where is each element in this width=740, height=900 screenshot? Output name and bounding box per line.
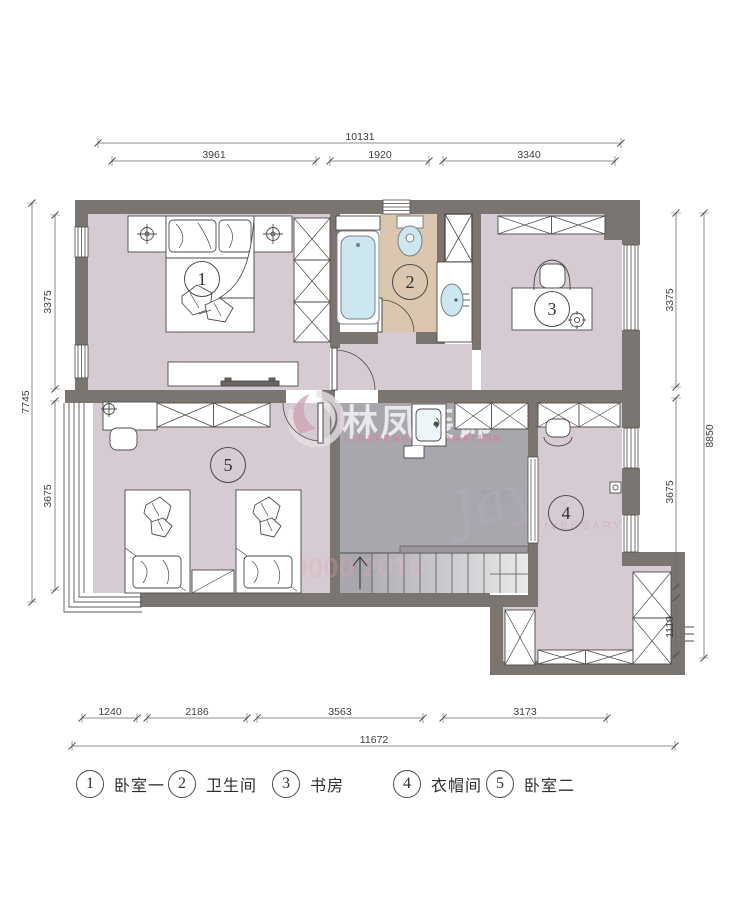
bay-window-strip — [58, 593, 148, 616]
dim-label: 3173 — [511, 706, 538, 718]
legend-number: 5 — [486, 770, 514, 798]
room-number-text: 3 — [548, 299, 557, 320]
wall-segment — [528, 403, 538, 457]
dim-label: 10131 — [343, 131, 376, 143]
watermark-digits: 0000 2010 — [292, 552, 424, 584]
dim-label: 1920 — [366, 149, 393, 161]
room-number-cloakroom: 4 — [548, 495, 584, 531]
dim-label: 11672 — [358, 734, 390, 746]
wall-segment — [528, 543, 538, 595]
cloakroom-floor — [538, 403, 622, 566]
legend-item: 1 卧室一 — [76, 770, 165, 798]
wall-segment — [437, 214, 445, 262]
bay-window-strip — [58, 403, 93, 616]
legend-item: 5 卧室二 — [486, 770, 575, 798]
bathtub-alcove-floor — [335, 214, 380, 332]
legend-label: 卧室一 — [114, 772, 165, 796]
legend-label: 卫生间 — [206, 772, 257, 796]
wall-segment — [410, 200, 640, 214]
dim-label: 8850 — [704, 422, 716, 449]
cloakroom-wing-floor — [538, 566, 671, 661]
wall-segment — [622, 468, 640, 515]
room-number-text: 4 — [562, 503, 571, 524]
shaft-column — [445, 214, 472, 262]
watermark-subtitle: LIN&FENG DECORATION — [344, 434, 502, 445]
dim-label: 1110 — [664, 614, 676, 640]
socket-ticks — [685, 627, 694, 641]
wall-segment — [140, 593, 340, 607]
room-number-bedroom2: 5 — [210, 447, 246, 483]
corridor-floor — [378, 332, 416, 344]
legend-number: 4 — [393, 770, 421, 798]
wall-segment — [622, 200, 640, 245]
wall-segment — [75, 257, 88, 345]
wall-segment — [330, 593, 490, 607]
legend-item: 2 卫生间 — [168, 770, 257, 798]
wall-segment — [416, 332, 445, 344]
dim-label: 3961 — [200, 149, 227, 161]
cloakroom-wing-floor — [503, 607, 538, 661]
legend-item: 3 书房 — [272, 770, 344, 798]
dim-label: 3563 — [326, 706, 353, 718]
legend: 1 卧室一 2 卫生间 3 书房 4 衣帽间 5 卧室二 — [0, 770, 740, 810]
bedroom1-floor — [88, 214, 330, 390]
floorplan-canvas: 林凤装饰 LIN&FENG DECORATION 周杰 Jay ANNIVERS… — [0, 0, 740, 900]
wall-segment — [75, 200, 383, 214]
legend-label: 卧室二 — [524, 772, 575, 796]
room-number-text: 2 — [406, 272, 415, 293]
legend-item: 4 衣帽间 — [393, 770, 482, 798]
dim-label: 7745 — [20, 388, 32, 415]
dim-label: 2186 — [183, 706, 210, 718]
dim-label: 3675 — [664, 478, 676, 505]
room-number-text: 1 — [198, 269, 207, 290]
legend-label: 书房 — [310, 772, 344, 796]
room-number-study: 3 — [534, 291, 570, 327]
washbasin-nook — [437, 262, 472, 342]
wall-segment — [622, 403, 640, 428]
corridor-floor — [333, 344, 472, 390]
wall-segment — [65, 390, 286, 403]
wall-segment — [322, 390, 335, 403]
dim-label: 3375 — [664, 286, 676, 313]
legend-number: 1 — [76, 770, 104, 798]
legend-number: 2 — [168, 770, 196, 798]
room-number-text: 5 — [224, 455, 233, 476]
room-number-bedroom1: 1 — [184, 261, 220, 297]
wall-segment — [490, 595, 538, 607]
dim-label: 3340 — [515, 149, 542, 161]
dim-label: 3375 — [42, 288, 54, 315]
legend-label: 衣帽间 — [431, 772, 482, 796]
legend-number: 3 — [272, 770, 300, 798]
wall-segment — [75, 214, 88, 227]
wall-segment — [472, 214, 481, 350]
wall-segment — [330, 214, 340, 348]
wall-segment — [490, 661, 685, 675]
dim-label: 3675 — [42, 482, 54, 509]
wall-segment — [75, 378, 88, 390]
room-number-bathroom: 2 — [392, 264, 428, 300]
wall-segment — [333, 332, 378, 344]
dim-label: 1240 — [96, 706, 123, 718]
